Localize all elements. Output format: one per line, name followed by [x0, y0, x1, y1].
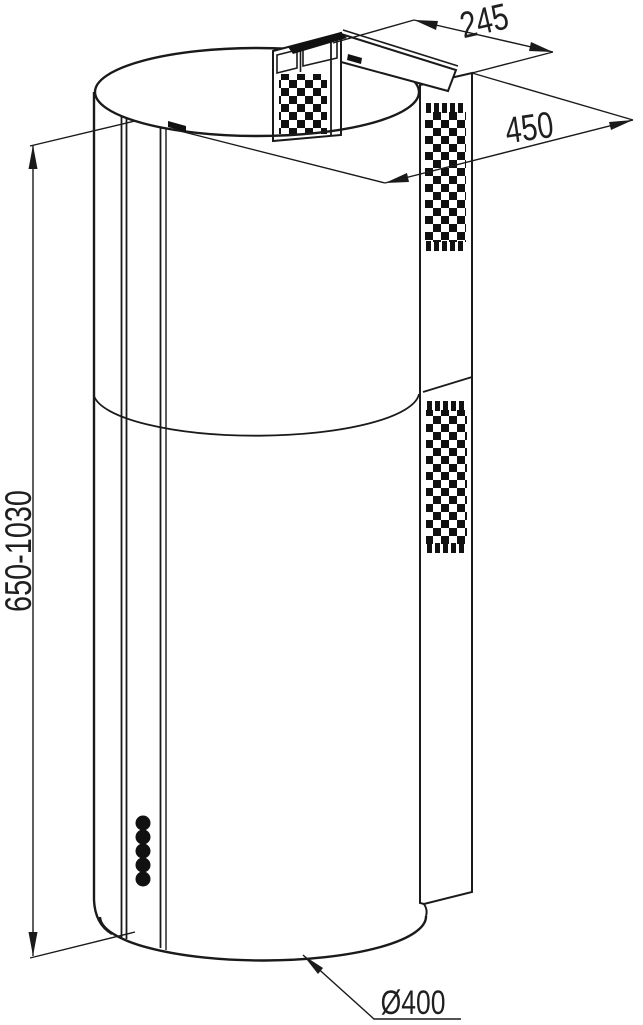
- duct-grille-mesh: [279, 74, 327, 134]
- cylinder-left-edge: [94, 92, 112, 934]
- control-buttons: [136, 816, 151, 887]
- back-panel-upper-grille: [425, 103, 466, 251]
- mid-seam-arc: [94, 394, 419, 436]
- control-strip: [122, 116, 187, 950]
- dimheight-arrow-top: [29, 145, 38, 169]
- bottom-rim-right-corner: [424, 904, 427, 916]
- technical-drawing-page: 245 450 650-1030 Ø400: [0, 0, 643, 1025]
- dim450-ext-right: [472, 73, 633, 120]
- dimension-diameter: Ø400: [303, 955, 461, 1022]
- top-rim-front-arc: [95, 92, 419, 136]
- back-panel-lower-grille: [426, 401, 467, 553]
- dimheight-label: 650-1030: [0, 490, 40, 612]
- control-button: [136, 858, 151, 873]
- dimdiameter-label: Ø400: [381, 984, 446, 1022]
- control-button: [136, 844, 151, 859]
- dim245-ext-right: [472, 52, 553, 73]
- dim450-arrow-left: [385, 173, 409, 183]
- dimension-450: 450: [172, 73, 633, 183]
- dim450-arrow-right: [609, 120, 633, 130]
- control-button: [136, 816, 151, 831]
- dim245-arrow-right: [529, 42, 553, 52]
- dimheight-ext-top: [30, 121, 135, 146]
- back-panel: [420, 73, 472, 904]
- dim450-label: 450: [503, 105, 556, 153]
- dimension-height: 650-1030: [0, 121, 135, 958]
- control-button: [136, 872, 151, 887]
- dimheight-ext-bottom: [30, 932, 135, 958]
- dim245-arrow-left: [414, 20, 438, 30]
- dimheight-arrow-bottom: [29, 932, 38, 956]
- technical-drawing-canvas: 245 450 650-1030 Ø400: [0, 0, 643, 1025]
- bottom-rim-front-arc: [100, 916, 426, 961]
- control-button: [136, 830, 151, 845]
